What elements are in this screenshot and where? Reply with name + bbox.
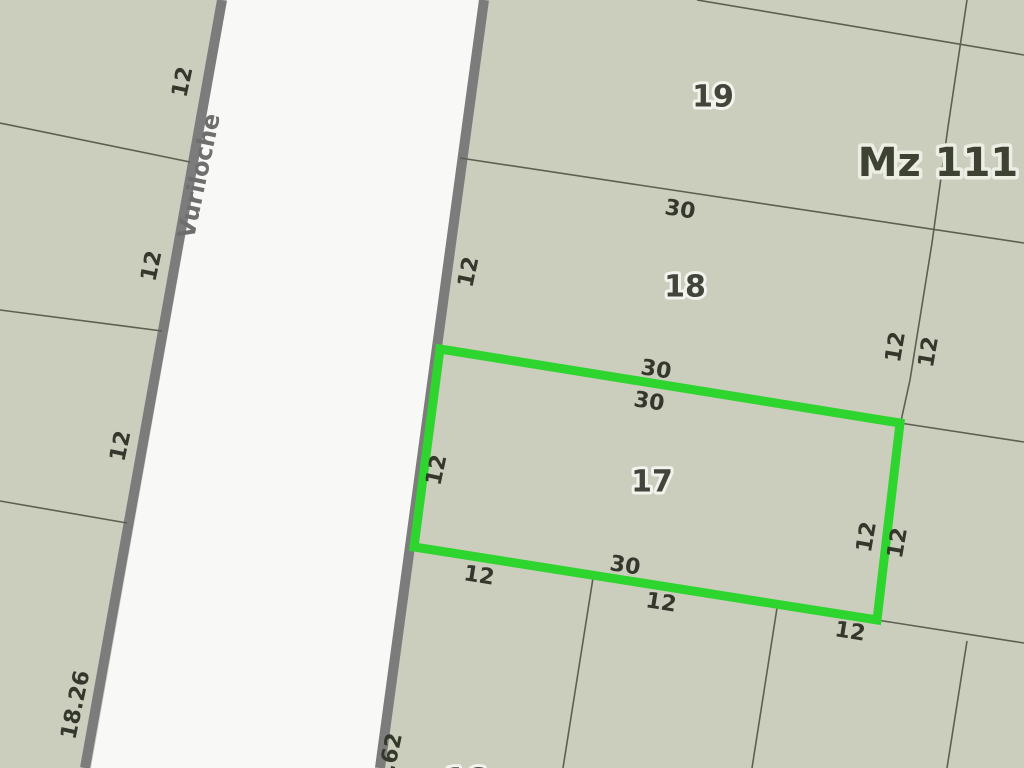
cadastral-map-canvas[interactable]: Vuriloche19181716Mz 11112121218.264.6212…: [0, 0, 1024, 768]
parcel-number-16-partial: 16: [445, 763, 487, 768]
dimension-label: 30: [663, 195, 697, 224]
dimension-label: 12: [881, 330, 911, 365]
dimension-label: 12: [883, 526, 913, 561]
dimension-label: 12: [852, 520, 882, 555]
parcel-number-19: 19: [692, 80, 734, 115]
dimension-label: 12: [914, 335, 944, 370]
dimension-label: 30: [608, 551, 642, 580]
parcel-number-18: 18: [664, 270, 706, 305]
parcel-number-17: 17: [631, 465, 673, 500]
dimension-label: 30: [639, 355, 673, 384]
dimension-label: 12: [644, 588, 678, 617]
cadastral-map[interactable]: Vuriloche19181716Mz 11112121218.264.6212…: [0, 0, 1024, 768]
dimension-label: 30: [632, 387, 666, 416]
dimension-label: 12: [833, 617, 867, 646]
dimension-label: 12: [462, 561, 496, 590]
block-label: Mz 111: [858, 140, 1019, 186]
